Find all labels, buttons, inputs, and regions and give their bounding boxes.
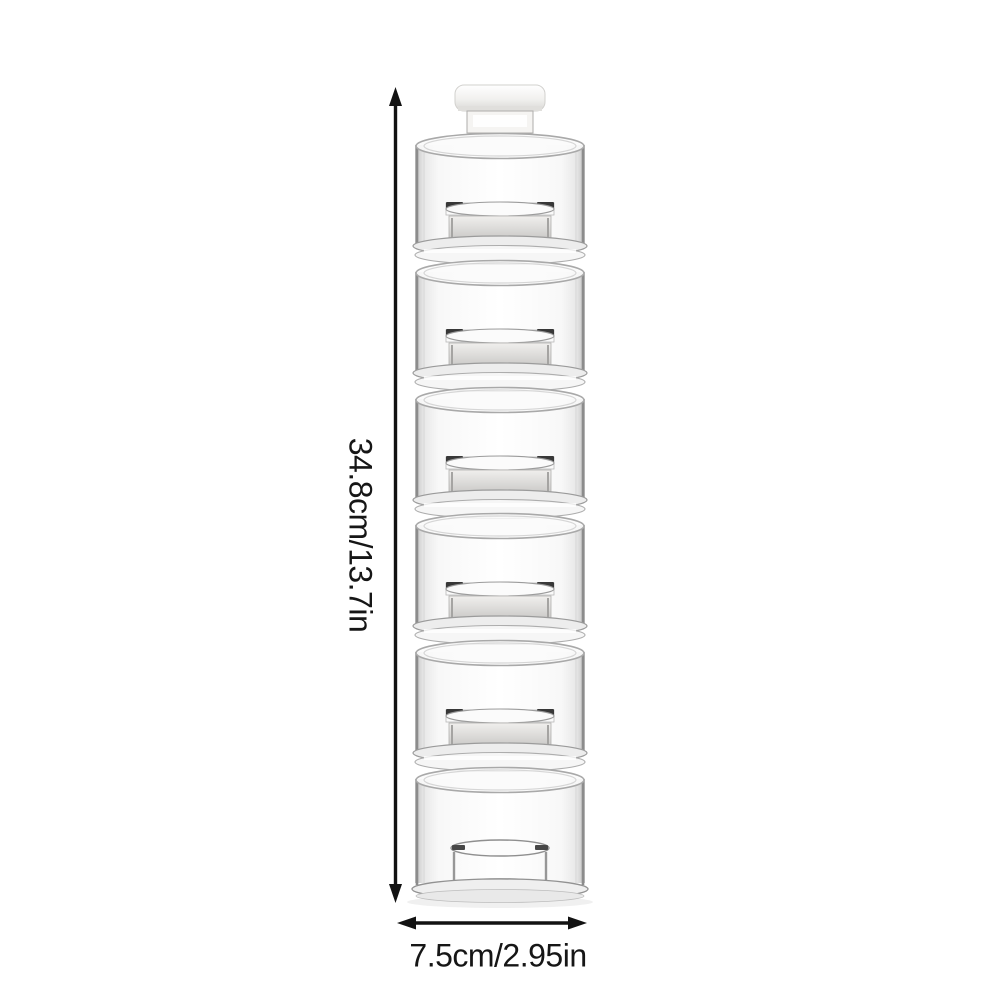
height-dimension-label: 34.8cm/13.7in [342, 438, 379, 633]
top-cap [455, 85, 545, 133]
jar-tier-1 [413, 134, 587, 265]
jar-tier-4 [413, 514, 587, 645]
width-dimension-arrow [397, 917, 587, 930]
jar-tier-3 [413, 388, 587, 519]
product-dimension-image: 34.8cm/13.7in 7.5cm/2.95in [0, 0, 1000, 1000]
width-dimension-label: 7.5cm/2.95in [409, 938, 586, 975]
jar-tier-2 [413, 261, 587, 392]
product-illustration [0, 0, 1000, 1000]
jar-tier-5 [413, 641, 587, 772]
jar-tier-6-base [412, 768, 588, 903]
spice-jar-tower [407, 85, 593, 908]
height-dimension-arrow [389, 87, 402, 903]
